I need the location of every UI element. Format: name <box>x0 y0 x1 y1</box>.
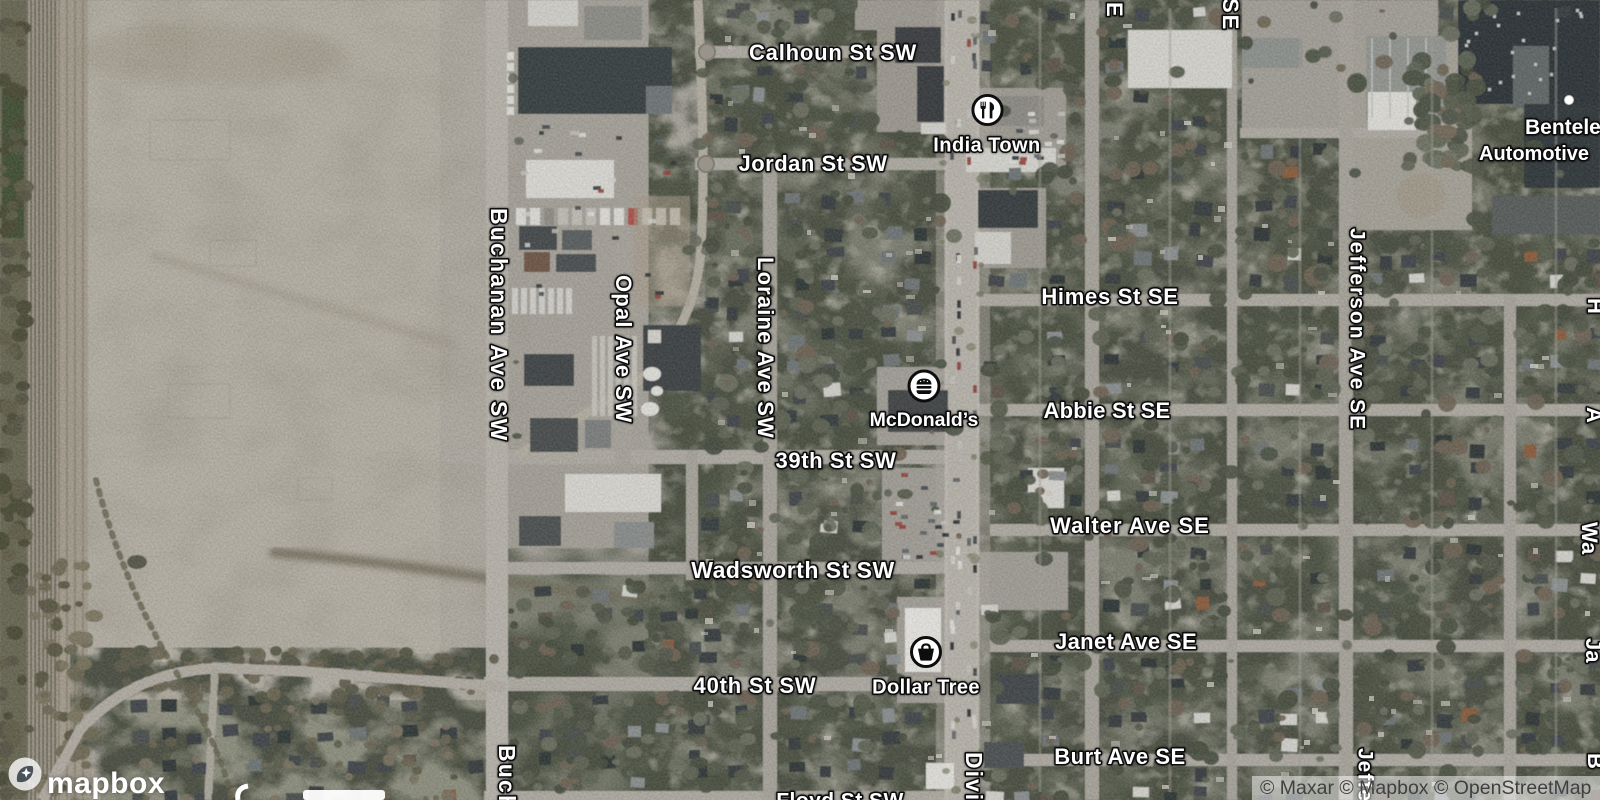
svg-text:H: H <box>1583 298 1600 314</box>
svg-text:Walter Ave SE: Walter Ave SE <box>1050 513 1210 538</box>
svg-text:Janet Ave SE: Janet Ave SE <box>1055 629 1197 654</box>
svg-text:Buchanan Ave SW: Buchanan Ave SW <box>486 208 512 443</box>
svg-text:Buchanan Ave SW: Buchanan Ave SW <box>494 745 520 800</box>
svg-text:Wa: Wa <box>1577 522 1600 555</box>
svg-text:Burt Ave SE: Burt Ave SE <box>1054 744 1186 769</box>
svg-text:B: B <box>1583 753 1600 769</box>
svg-text:Jordan St SW: Jordan St SW <box>738 151 887 176</box>
svg-text:© Maxar © Mapbox © OpenStreetM: © Maxar © Mapbox © OpenStreetMap <box>1260 777 1592 799</box>
svg-text:A: A <box>1582 407 1600 423</box>
svg-text:Floyd St SW: Floyd St SW <box>776 790 903 800</box>
svg-text:Jefferson Ave SE: Jefferson Ave SE <box>1345 228 1368 431</box>
svg-text:SE: SE <box>1218 0 1243 31</box>
svg-text:39th St SW: 39th St SW <box>776 448 897 473</box>
svg-text:Opal Ave SW: Opal Ave SW <box>611 275 636 424</box>
svg-text:Ja: Ja <box>1581 638 1600 663</box>
svg-text:Benteler: Benteler <box>1525 116 1600 139</box>
svg-text:40th St SW: 40th St SW <box>694 673 817 698</box>
svg-text:Himes St SE: Himes St SE <box>1041 284 1178 309</box>
svg-text:mapbox: mapbox <box>47 767 165 800</box>
svg-text:Division Ave: Division Ave <box>961 752 987 800</box>
svg-text:McDonald’s: McDonald’s <box>870 409 979 431</box>
svg-text:Calhoun St SW: Calhoun St SW <box>749 40 917 65</box>
svg-text:Automotive: Automotive <box>1479 143 1589 165</box>
svg-text:Loraine Ave SW: Loraine Ave SW <box>753 257 778 439</box>
svg-text:Dollar Tree: Dollar Tree <box>872 676 980 698</box>
svg-text:E: E <box>1102 2 1127 17</box>
svg-text:India Town: India Town <box>933 134 1040 156</box>
svg-text:Wadsworth St SW: Wadsworth St SW <box>691 557 894 583</box>
svg-text:Abbie St SE: Abbie St SE <box>1044 398 1171 423</box>
